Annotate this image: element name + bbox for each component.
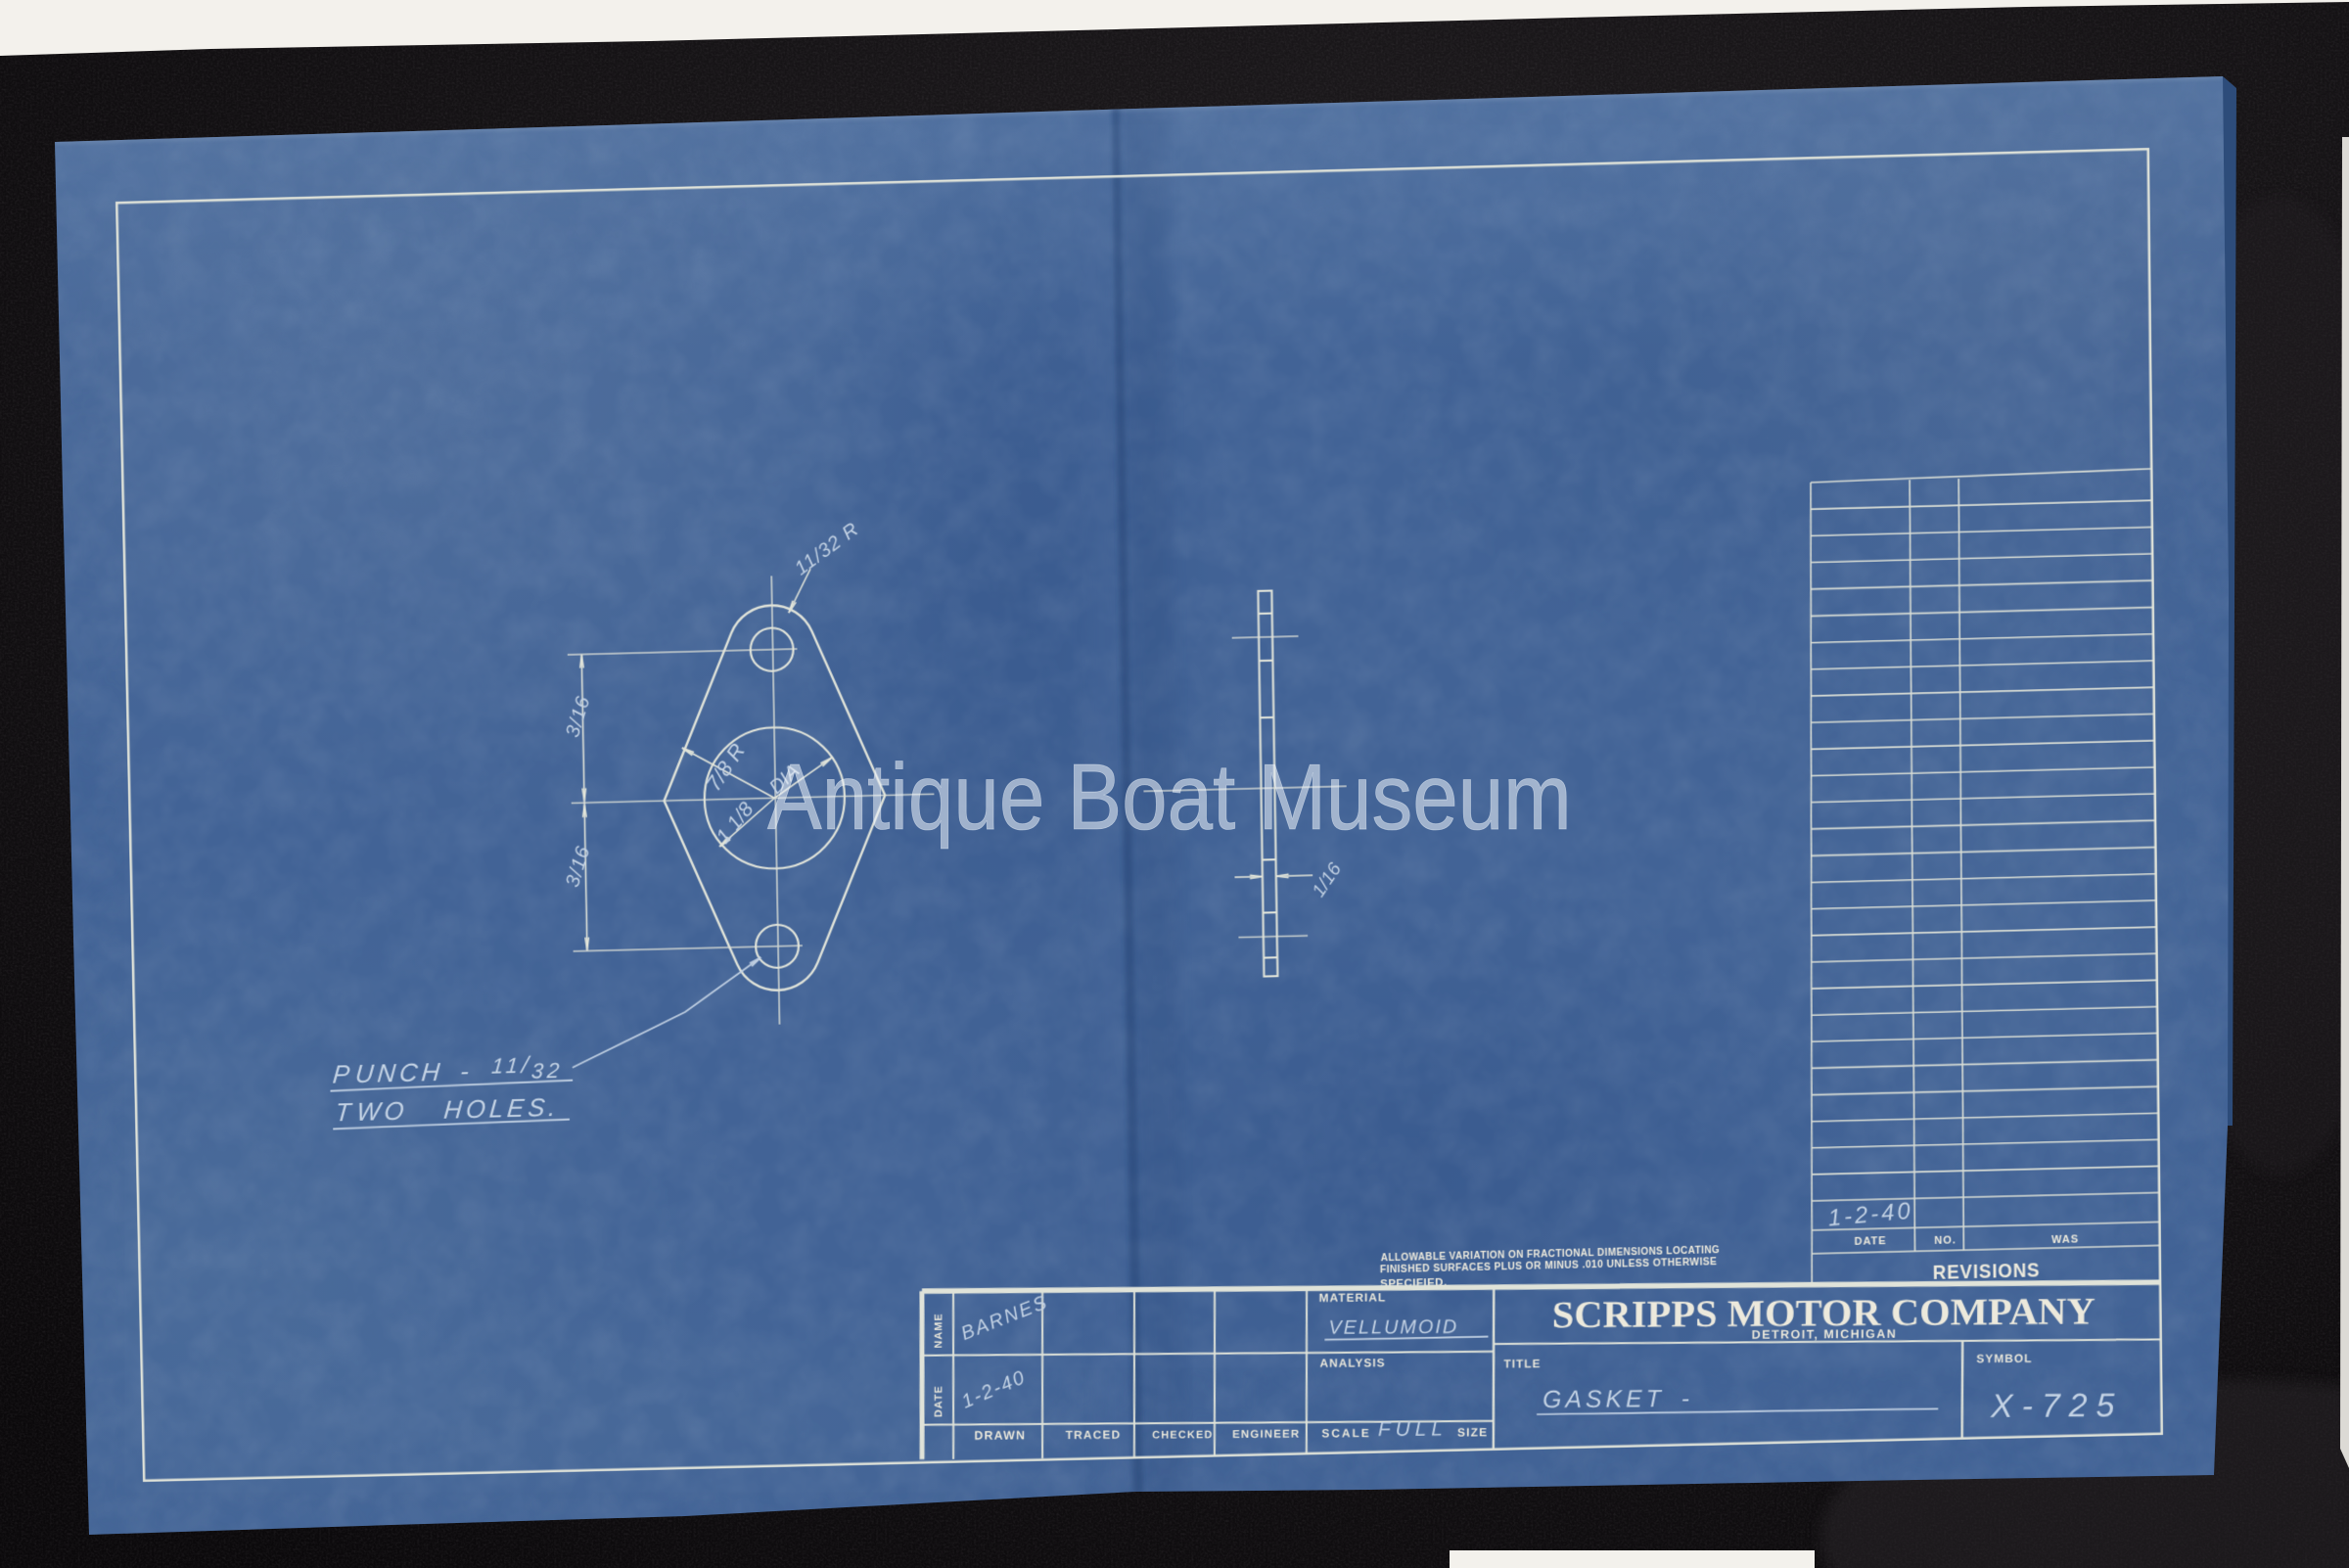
svg-text:NAME: NAME — [933, 1313, 944, 1348]
svg-text:DATE: DATE — [1855, 1235, 1887, 1248]
svg-text:GASKET -: GASKET - — [1543, 1385, 1693, 1413]
svg-text:DATE: DATE — [933, 1385, 944, 1417]
svg-text:WAS: WAS — [2051, 1233, 2079, 1246]
svg-text:SYMBOL: SYMBOL — [1976, 1352, 2032, 1365]
svg-text:7/8 R: 7/8 R — [701, 739, 750, 796]
svg-text:MATERIAL: MATERIAL — [1319, 1291, 1387, 1305]
svg-text:11/32 R: 11/32 R — [791, 519, 863, 580]
svg-text:1 1/8: 1 1/8 — [713, 798, 759, 848]
svg-text:DETROIT, MICHIGAN: DETROIT, MICHIGAN — [1752, 1327, 1898, 1342]
svg-text:3/16: 3/16 — [562, 843, 594, 889]
svg-text:SIZE: SIZE — [1457, 1425, 1488, 1439]
svg-text:1/16: 1/16 — [1309, 859, 1346, 901]
svg-text:DRAWN: DRAWN — [974, 1428, 1026, 1442]
svg-text:TRACED: TRACED — [1066, 1428, 1122, 1442]
svg-text:NO.: NO. — [1934, 1234, 1957, 1247]
svg-text:3/16: 3/16 — [562, 693, 594, 739]
svg-text:BARNES: BARNES — [958, 1291, 1051, 1345]
svg-text:ENGINEER: ENGINEER — [1232, 1429, 1300, 1441]
svg-text:SCALE: SCALE — [1321, 1426, 1370, 1440]
svg-text:VELLUMOID: VELLUMOID — [1328, 1316, 1458, 1339]
svg-text:ANALYSIS: ANALYSIS — [1319, 1356, 1385, 1369]
svg-text:TITLE: TITLE — [1503, 1357, 1541, 1370]
svg-text:PUNCH - 11/32: PUNCH - 11/32 — [332, 1051, 565, 1089]
svg-text:X-725: X-725 — [1990, 1387, 2124, 1425]
svg-text:1-2-40: 1-2-40 — [1827, 1197, 1914, 1231]
svg-text:CHECKED: CHECKED — [1152, 1429, 1213, 1441]
svg-text:REVISIONS: REVISIONS — [1933, 1259, 2041, 1284]
svg-text:FULL: FULL — [1378, 1418, 1448, 1441]
svg-text:1-2-40: 1-2-40 — [958, 1366, 1029, 1413]
